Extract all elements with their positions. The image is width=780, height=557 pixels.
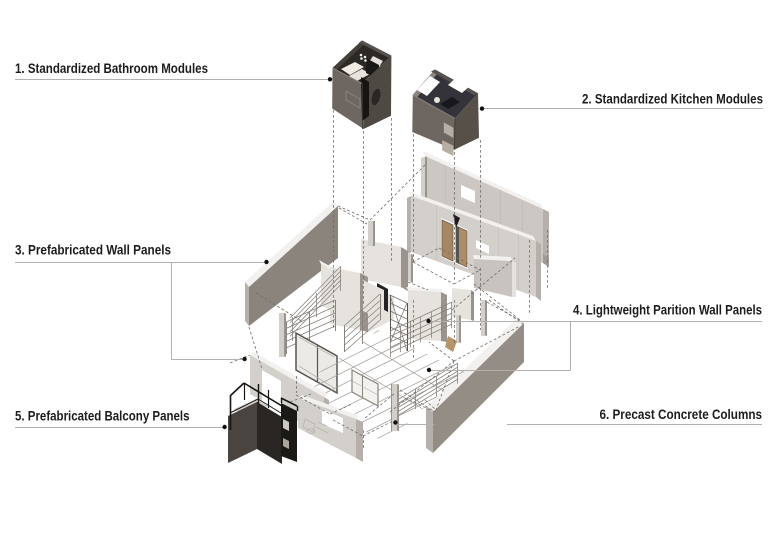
svg-text:5. Prefabricated Balcony Panel: 5. Prefabricated Balcony Panels [15,408,190,424]
svg-text:2. Standardized Kitchen Module: 2. Standardized Kitchen Modules [582,91,763,107]
svg-text:1. Standardized Bathroom Modul: 1. Standardized Bathroom Modules [15,60,208,76]
svg-text:4. Lightweight Parition Wall P: 4. Lightweight Parition Wall Panels [573,301,762,317]
svg-text:6. Precast Concrete Columns: 6. Precast Concrete Columns [600,406,763,422]
svg-text:3. Prefabricated Wall Panels: 3. Prefabricated Wall Panels [15,242,171,258]
